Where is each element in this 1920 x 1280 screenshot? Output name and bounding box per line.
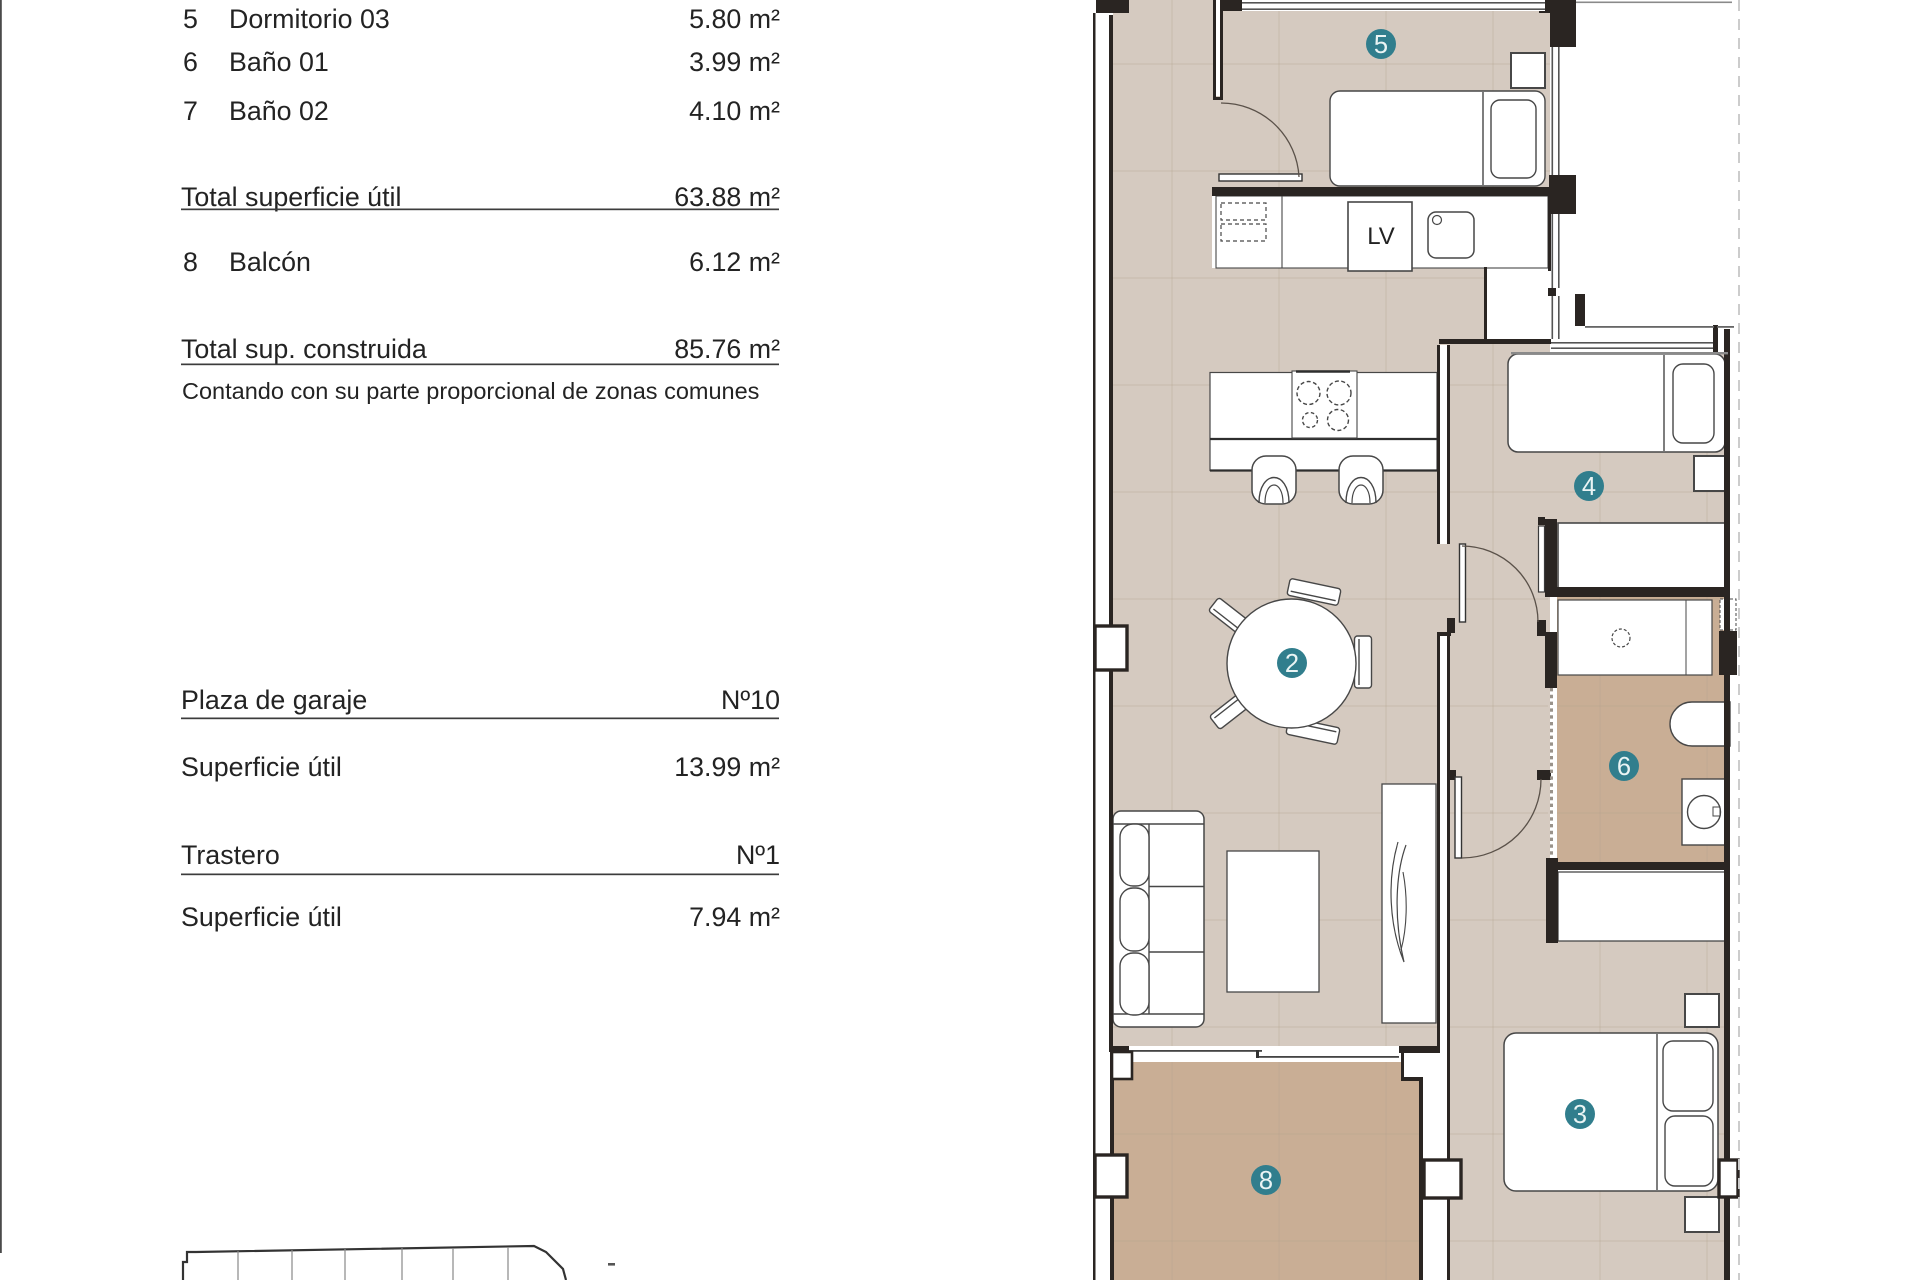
svg-text:85.76 m²: 85.76 m² (674, 334, 780, 364)
svg-text:8: 8 (1259, 1167, 1273, 1195)
svg-text:6.12 m²: 6.12 m² (689, 247, 780, 277)
svg-text:7: 7 (183, 96, 198, 126)
svg-text:Baño 02: Baño 02 (229, 96, 329, 126)
svg-text:8: 8 (183, 247, 198, 277)
svg-text:4: 4 (1582, 473, 1596, 501)
svg-text:6: 6 (1617, 753, 1631, 781)
svg-text:Contando con su parte proporci: Contando con su parte proporcional de zo… (182, 378, 759, 404)
svg-text:3.99 m²: 3.99 m² (689, 47, 780, 77)
svg-text:3: 3 (1573, 1101, 1587, 1129)
svg-text:Nº1: Nº1 (736, 840, 780, 870)
svg-text:Superficie útil: Superficie útil (181, 902, 342, 932)
svg-text:Plaza de garaje: Plaza de garaje (181, 685, 367, 715)
svg-text:Nº10: Nº10 (721, 685, 780, 715)
svg-text:Balcón: Balcón (229, 247, 311, 277)
svg-text:13.99 m²: 13.99 m² (674, 752, 780, 782)
svg-text:4.10 m²: 4.10 m² (689, 96, 780, 126)
svg-text:63.88 m²: 63.88 m² (674, 182, 780, 212)
svg-text:Baño 01: Baño 01 (229, 47, 329, 77)
svg-text:2: 2 (1285, 650, 1299, 678)
svg-text:Dormitorio 03: Dormitorio 03 (229, 4, 390, 34)
svg-text:7.94 m²: 7.94 m² (689, 902, 780, 932)
svg-text:5.80 m²: 5.80 m² (689, 4, 780, 34)
svg-text:Total sup. construida: Total sup. construida (181, 334, 427, 364)
svg-text:6: 6 (183, 47, 198, 77)
svg-text:5: 5 (183, 4, 198, 34)
svg-text:Total superficie útil: Total superficie útil (181, 182, 401, 212)
svg-text:Superficie útil: Superficie útil (181, 752, 342, 782)
svg-text:Trastero: Trastero (181, 840, 280, 870)
svg-text:LV: LV (1367, 223, 1395, 250)
svg-text:5: 5 (1374, 31, 1388, 59)
